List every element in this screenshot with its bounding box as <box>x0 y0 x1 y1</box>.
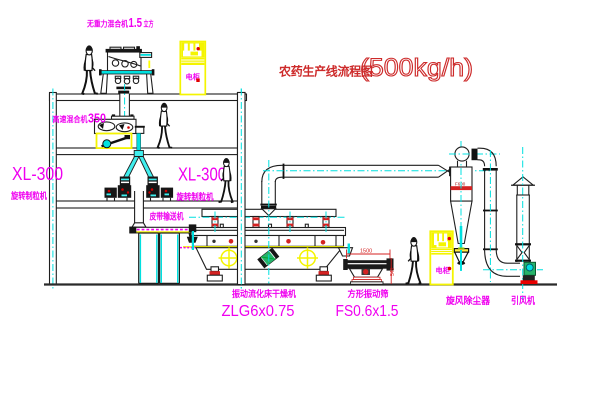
svg-text:旋转制粒机: 旋转制粒机 <box>10 190 47 201</box>
svg-text:XL-300: XL-300 <box>178 165 226 185</box>
svg-text:皮带输送机: 皮带输送机 <box>149 211 184 222</box>
svg-text:1.5: 1.5 <box>129 16 143 30</box>
svg-text:高速混合机: 高速混合机 <box>53 114 88 124</box>
svg-text:方形振动筛: 方形振动筛 <box>348 288 389 299</box>
svg-text:振动流化床干燥机: 振动流化床干燥机 <box>232 288 296 299</box>
svg-text:无重力混合机: 无重力混合机 <box>86 19 128 29</box>
svg-text:农药生产线流程图: 农药生产线流程图 <box>278 64 373 79</box>
svg-text:(500kg/h): (500kg/h) <box>360 54 473 82</box>
svg-text:旋转制粒机: 旋转制粒机 <box>176 191 214 202</box>
svg-text:F600: F600 <box>455 182 466 187</box>
svg-text:ZLG6x0.75: ZLG6x0.75 <box>222 303 295 320</box>
svg-text:FS0.6x1.5: FS0.6x1.5 <box>336 303 399 320</box>
svg-text:旋风除尘器: 旋风除尘器 <box>445 295 490 307</box>
svg-text:350: 350 <box>88 112 106 126</box>
svg-text:引风机: 引风机 <box>511 295 535 307</box>
svg-text:540: 540 <box>390 267 396 276</box>
svg-text:电柜: 电柜 <box>436 266 450 275</box>
svg-text:XL-300: XL-300 <box>12 164 63 184</box>
svg-text:立方: 立方 <box>144 19 154 29</box>
svg-text:1500: 1500 <box>360 249 372 255</box>
